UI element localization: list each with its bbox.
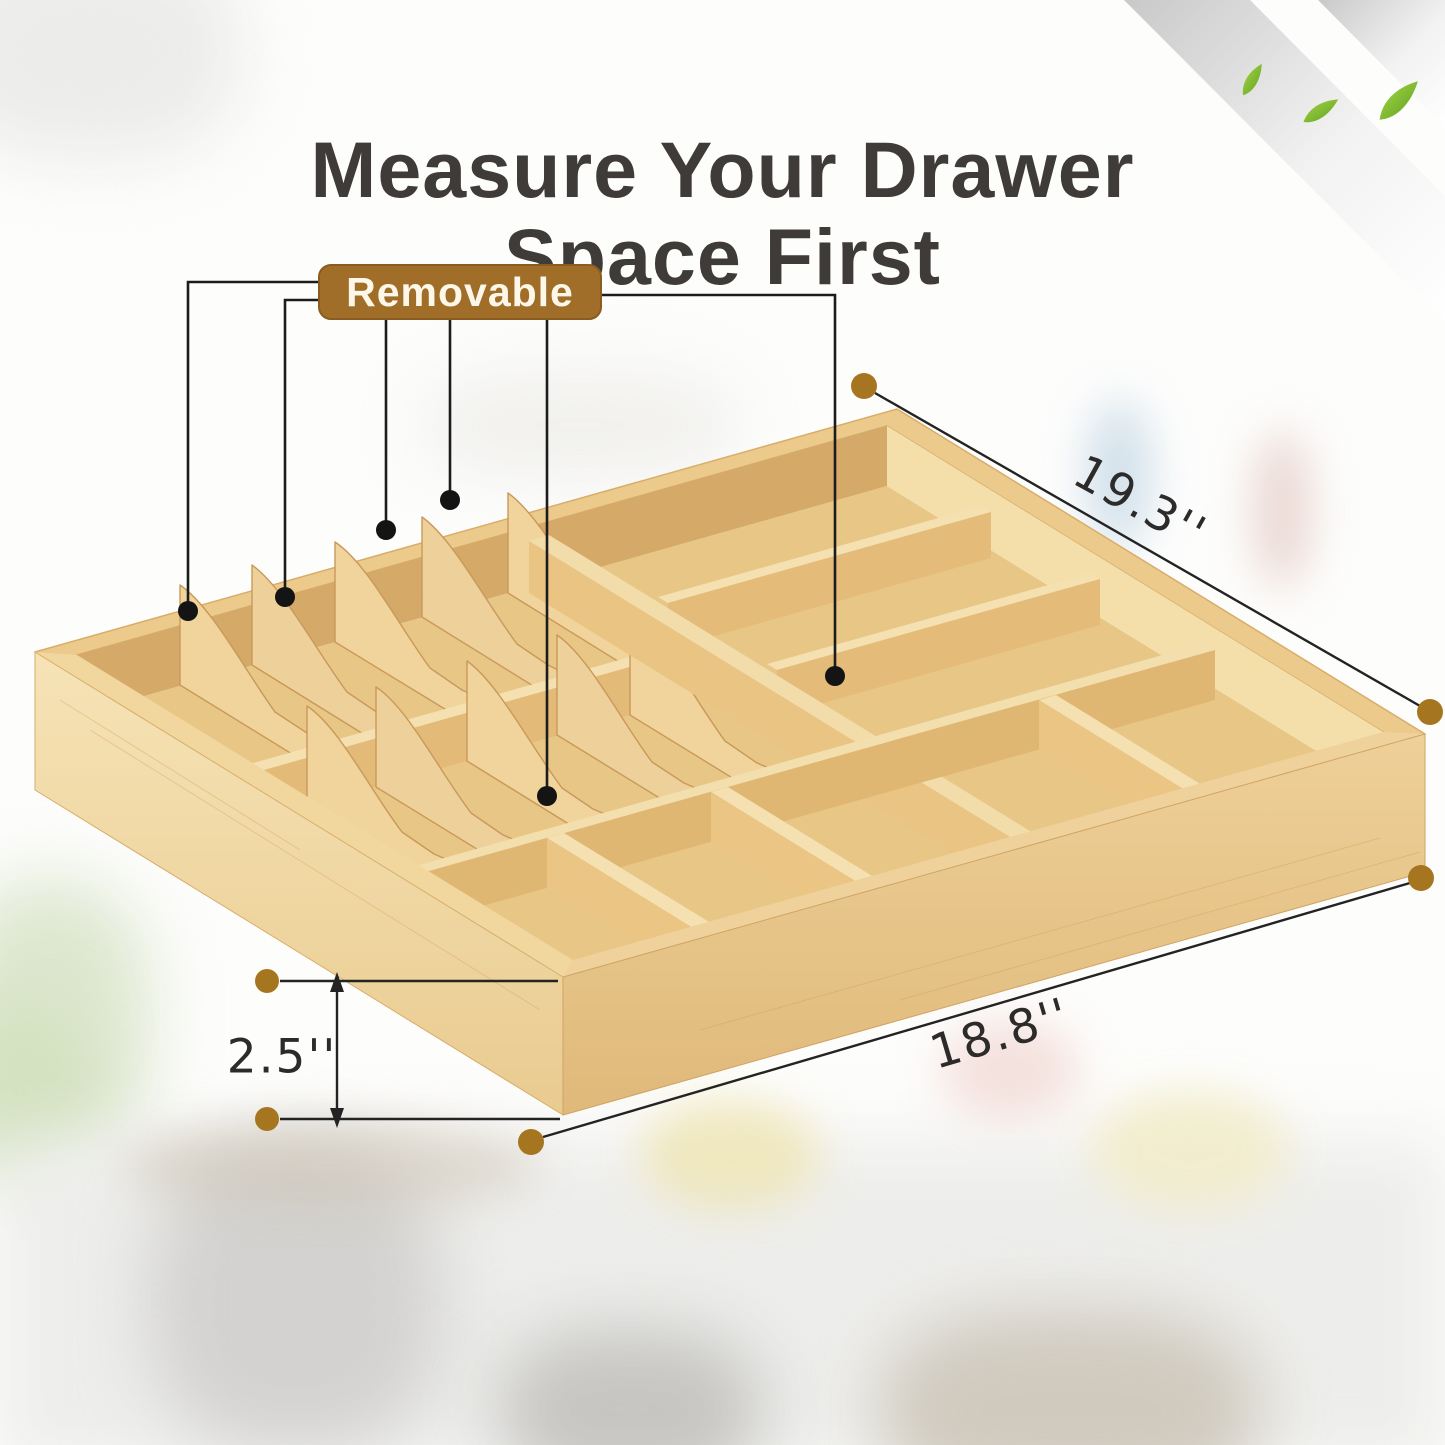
dimension-dot: [1417, 699, 1443, 725]
callout-dot: [275, 587, 295, 607]
removable-badge: Removable: [318, 264, 602, 320]
callout-line: [188, 282, 318, 611]
dimension-dot: [518, 1129, 544, 1155]
bamboo-tray: [35, 409, 1425, 1115]
title-line-2: Space First: [0, 214, 1445, 301]
product-infographic: Measure Your Drawer Space First Removabl…: [0, 0, 1445, 1445]
callout-dot: [537, 786, 557, 806]
page-title: Measure Your Drawer Space First: [0, 127, 1445, 301]
dimension-dot: [1408, 865, 1434, 891]
leaf-icon: [1377, 81, 1420, 119]
dimension-label-height: 2.5'': [227, 1030, 338, 1085]
callout-line: [285, 300, 318, 597]
callout-dot: [178, 601, 198, 621]
title-line-1: Measure Your Drawer: [0, 127, 1445, 214]
callout-dot: [825, 666, 845, 686]
callout-dot: [376, 520, 396, 540]
dimension-dot: [255, 1107, 279, 1131]
callout-dot: [440, 490, 460, 510]
dimension-dot: [255, 969, 279, 993]
dimension-dot: [851, 373, 877, 399]
